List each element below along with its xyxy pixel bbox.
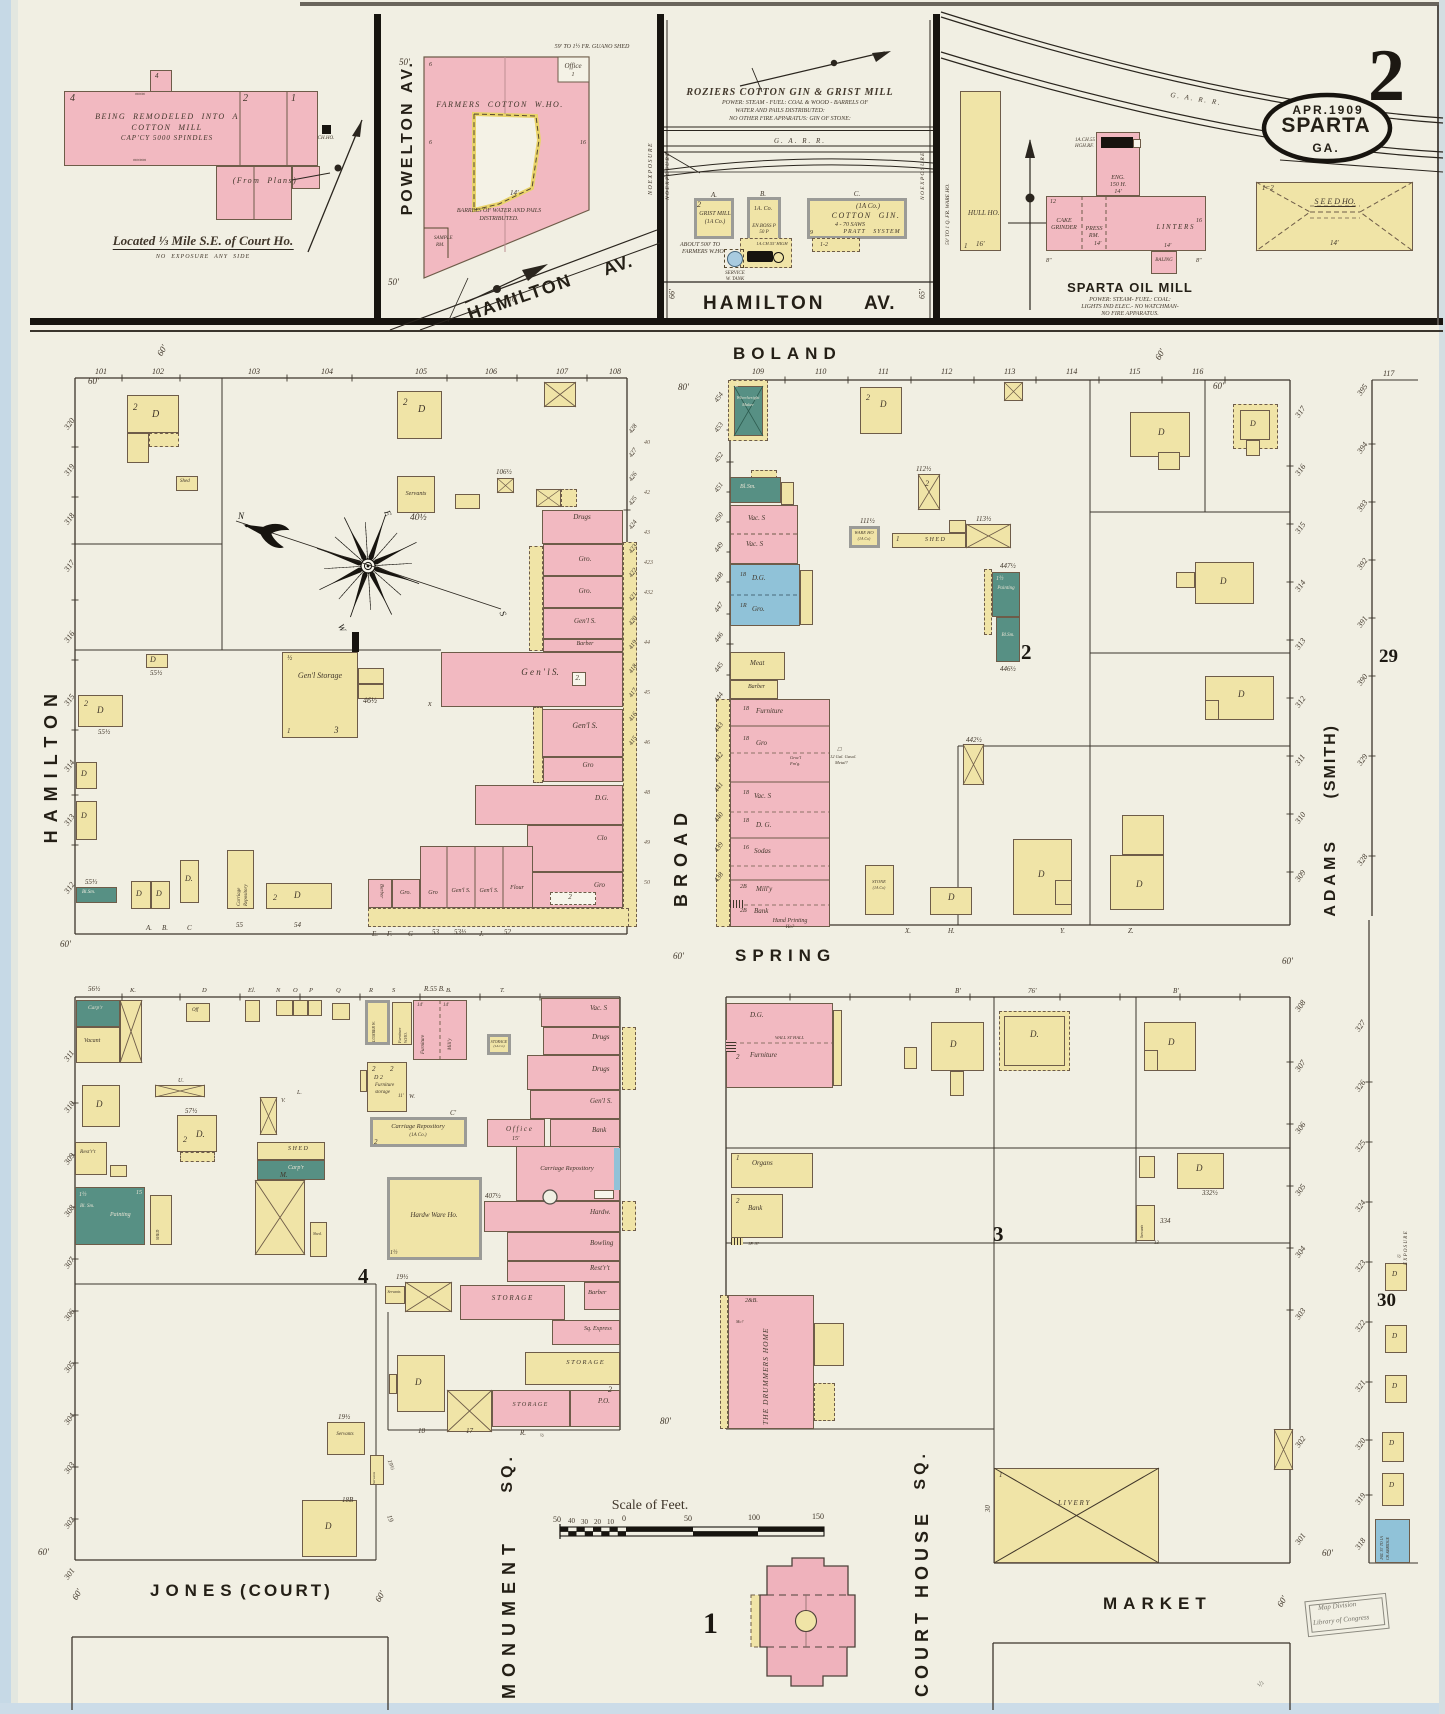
svg-text:N: N <box>237 511 245 521</box>
svg-text:S: S <box>498 609 509 618</box>
svg-text:W: W <box>336 622 349 634</box>
svg-text:E: E <box>382 508 394 519</box>
